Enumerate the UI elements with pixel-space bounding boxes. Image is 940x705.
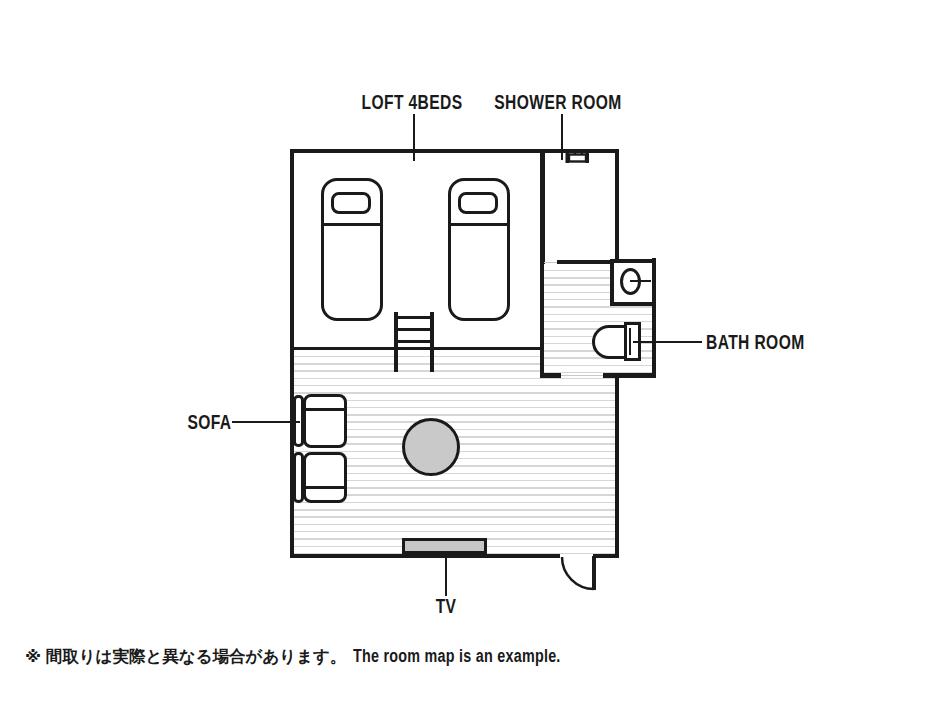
bed-icon xyxy=(448,178,510,321)
bath-bottom-wall xyxy=(540,373,561,378)
footer-note: ※ 間取りは実際と異なる場合があります。 The room map is an … xyxy=(25,646,606,668)
door-swing-arc-icon xyxy=(556,552,598,594)
basin-tap-line xyxy=(630,280,651,282)
tv-icon xyxy=(402,538,487,554)
bath-bottom-wall xyxy=(603,373,656,378)
leader-line-loft xyxy=(413,114,415,161)
floor-plan: LOFT 4BEDS SHOWER ROOM BATH ROOM SOFA TV… xyxy=(0,0,940,705)
label-tv: TV xyxy=(436,596,457,616)
label-loft-4beds: LOFT 4BEDS xyxy=(362,92,463,112)
bath-door-threshold xyxy=(561,375,603,377)
leader-line-sofa xyxy=(232,421,300,423)
footer-note-english: The room map is an example. xyxy=(353,646,561,667)
loft-divider-wall xyxy=(292,347,546,350)
shower-door-threshold xyxy=(544,262,557,264)
blanket-line xyxy=(451,223,507,226)
leader-line-bath xyxy=(633,341,702,343)
leader-line-shower xyxy=(561,114,563,160)
pillow-icon xyxy=(331,192,371,214)
bed-icon xyxy=(321,178,383,321)
pillow-icon xyxy=(458,192,498,214)
leader-line-tv xyxy=(445,556,447,596)
wash-basin-box xyxy=(610,259,656,306)
round-table-icon xyxy=(402,418,460,476)
label-shower-room: SHOWER ROOM xyxy=(494,92,621,112)
shower-head-icon xyxy=(563,149,591,166)
footer-note-japanese: ※ 間取りは実際と異なる場合があります。 xyxy=(25,646,347,668)
label-bath-room: BATH ROOM xyxy=(706,332,805,352)
label-sofa: SOFA xyxy=(187,412,231,432)
blanket-line xyxy=(324,223,380,226)
